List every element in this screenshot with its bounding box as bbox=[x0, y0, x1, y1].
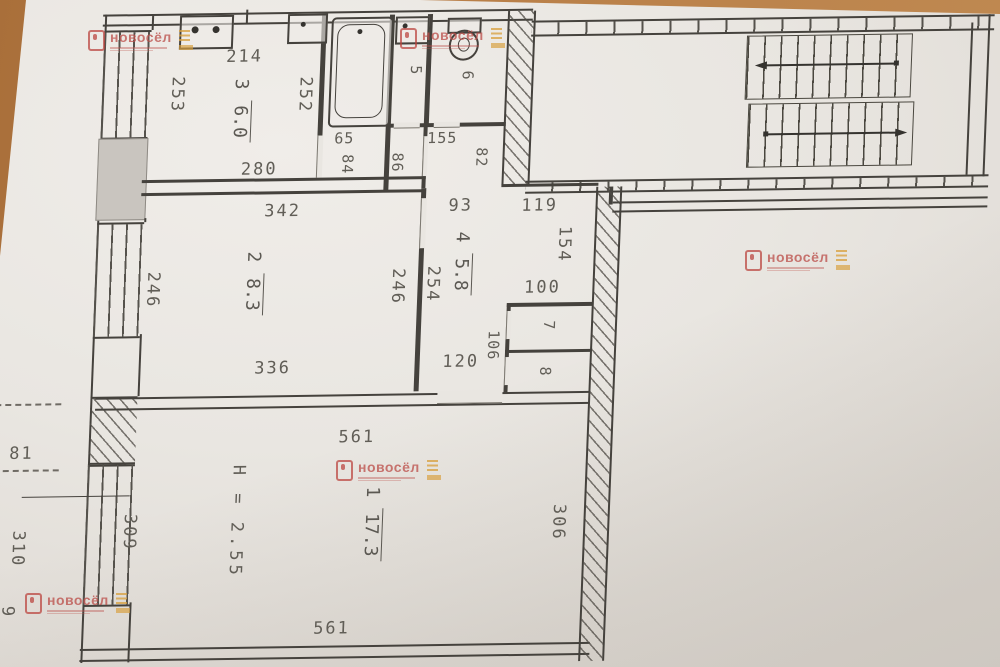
dim-corridor-119: 119 bbox=[521, 195, 558, 216]
room-label-bath: 5 bbox=[407, 65, 425, 75]
dim-balcony-9: 9 bbox=[0, 606, 18, 619]
room-area: 17.3 bbox=[359, 508, 383, 562]
room2-window bbox=[93, 222, 144, 339]
room-label-closet7: 7 bbox=[540, 320, 558, 330]
room-label-kitchen: 3 6.0 bbox=[228, 78, 251, 143]
bath-door-opening bbox=[394, 122, 420, 128]
dim-hall-65: 65 bbox=[334, 129, 355, 147]
dim-room2-bottom: 336 bbox=[254, 358, 291, 379]
watermark: новосёл bbox=[25, 593, 130, 614]
watermark-slogan bbox=[767, 267, 824, 269]
watermark-logo-icon bbox=[400, 28, 417, 49]
dim-room2-left: 246 bbox=[142, 271, 163, 308]
watermark-award-icon bbox=[179, 30, 193, 50]
stair-arrow-left-tail bbox=[894, 61, 899, 66]
wall-room1-bottom bbox=[79, 642, 589, 662]
watermark: новосёл bbox=[336, 460, 441, 481]
bathtub-icon bbox=[328, 17, 394, 128]
room-area: 6.0 bbox=[229, 100, 253, 143]
ceiling-height-note: H = 2.55 bbox=[224, 465, 248, 579]
dim-hall-84: 84 bbox=[338, 154, 357, 174]
watermark-slogan bbox=[110, 47, 167, 49]
dim-kitchen-top: 214 bbox=[226, 46, 263, 67]
watermark: новосёл bbox=[400, 28, 505, 49]
watermark-text: новосёл bbox=[110, 30, 172, 44]
dim-hall-86: 86 bbox=[388, 152, 407, 172]
watermark-slogan-2 bbox=[47, 613, 90, 614]
dim-hall-155: 155 bbox=[427, 129, 458, 147]
closet7-door-opening bbox=[506, 311, 512, 339]
room-label-room2: 2 8.3 bbox=[240, 251, 263, 316]
wall-neighbor-top bbox=[612, 196, 987, 212]
dim-room2-right: 246 bbox=[387, 268, 408, 305]
vent-shaft-block bbox=[95, 138, 148, 221]
wall-stair-right-inner bbox=[966, 23, 974, 175]
watermark-text: новосёл bbox=[358, 460, 420, 474]
dim-corridor-93: 93 bbox=[448, 196, 473, 216]
watermark-award-icon bbox=[836, 250, 850, 270]
dim-room1-top: 561 bbox=[338, 427, 375, 448]
kitchen-sink-icon bbox=[287, 14, 328, 45]
wall-room2-top bbox=[141, 189, 423, 196]
watermark-text: новосёл bbox=[47, 593, 109, 607]
wc-door-opening bbox=[434, 122, 460, 128]
watermark-text: новосёл bbox=[422, 28, 484, 42]
dim-corridor-154: 154 bbox=[553, 226, 574, 263]
room-label-closet8: 8 bbox=[536, 366, 554, 376]
watermark-award-icon bbox=[491, 28, 505, 48]
floor-plan: 214 253 252 280 65 84 86 155 82 93 119 1… bbox=[0, 0, 1000, 667]
wall-stairblock-left bbox=[501, 11, 536, 186]
room1-door-opening bbox=[437, 390, 502, 404]
wall-right-hatched bbox=[578, 186, 622, 661]
stair-flight-upper bbox=[745, 33, 913, 99]
watermark-logo-icon bbox=[745, 250, 762, 271]
watermark-slogan-2 bbox=[358, 480, 401, 481]
watermark-award-icon bbox=[427, 460, 441, 480]
photo-background: 214 253 252 280 65 84 86 155 82 93 119 1… bbox=[0, 0, 1000, 667]
dim-kitchen-right: 252 bbox=[294, 76, 315, 113]
dim-balcony-310: 310 bbox=[7, 530, 28, 567]
dim-corridor-120: 120 bbox=[442, 351, 479, 372]
watermark-award-icon bbox=[116, 593, 130, 613]
room-area: 5.8 bbox=[450, 253, 474, 296]
room-label-wc: 6 bbox=[458, 70, 476, 80]
stair-arrow-right-tail bbox=[763, 131, 768, 136]
wall-room1-top bbox=[95, 391, 590, 411]
stair-arrow-left-icon bbox=[755, 61, 767, 69]
watermark-slogan bbox=[47, 610, 104, 612]
dim-kitchen-bottom: 280 bbox=[240, 159, 277, 180]
dim-corridor-106: 106 bbox=[484, 330, 503, 360]
room-label-corridor: 4 5.8 bbox=[449, 231, 472, 296]
watermark-text: новосёл bbox=[767, 250, 829, 264]
dim-kitchen-left: 253 bbox=[166, 76, 187, 113]
dim-hall-82: 82 bbox=[472, 147, 491, 167]
watermark-slogan-2 bbox=[422, 48, 465, 49]
kitchen-door-opening bbox=[316, 136, 324, 178]
dim-room1-bottom: 561 bbox=[313, 618, 350, 639]
room-number: 2 bbox=[243, 251, 264, 262]
dim-balcony-81: 81 bbox=[9, 444, 34, 464]
dim-room2-top: 342 bbox=[264, 201, 301, 222]
wall-closet-top bbox=[507, 302, 593, 307]
wall-closet-mid bbox=[505, 349, 591, 353]
dim-room1-left: 309 bbox=[119, 514, 140, 551]
wall-left-exterior bbox=[80, 14, 152, 663]
room-number: 4 bbox=[452, 231, 473, 242]
watermark: новосёл bbox=[745, 250, 850, 271]
stair-arrow-right-icon bbox=[895, 128, 907, 136]
dim-room1-right: 306 bbox=[548, 504, 569, 541]
watermark-slogan-2 bbox=[110, 50, 153, 51]
dim-corridor-100: 100 bbox=[524, 277, 561, 298]
watermark-slogan-2 bbox=[767, 270, 810, 271]
closet8-door-opening bbox=[504, 357, 510, 385]
watermark: новосёл bbox=[88, 30, 193, 51]
watermark-slogan bbox=[422, 45, 479, 47]
watermark-logo-icon bbox=[25, 593, 42, 614]
watermark-logo-icon bbox=[88, 30, 105, 51]
wall-top-stairblock bbox=[531, 14, 995, 36]
watermark-logo-icon bbox=[336, 460, 353, 481]
room-area: 8.3 bbox=[241, 273, 265, 316]
wall-segment bbox=[93, 334, 142, 397]
room-number: 1 bbox=[362, 486, 383, 497]
paper-sheet: 214 253 252 280 65 84 86 155 82 93 119 1… bbox=[0, 0, 1000, 667]
room-label-room1: 1 17.3 bbox=[359, 486, 383, 561]
dim-corridor-254: 254 bbox=[422, 266, 443, 303]
watermark-slogan bbox=[358, 477, 415, 479]
room-number: 3 bbox=[231, 78, 252, 89]
wall-stair-right-outer bbox=[982, 14, 990, 176]
room2-door-opening bbox=[419, 198, 427, 248]
